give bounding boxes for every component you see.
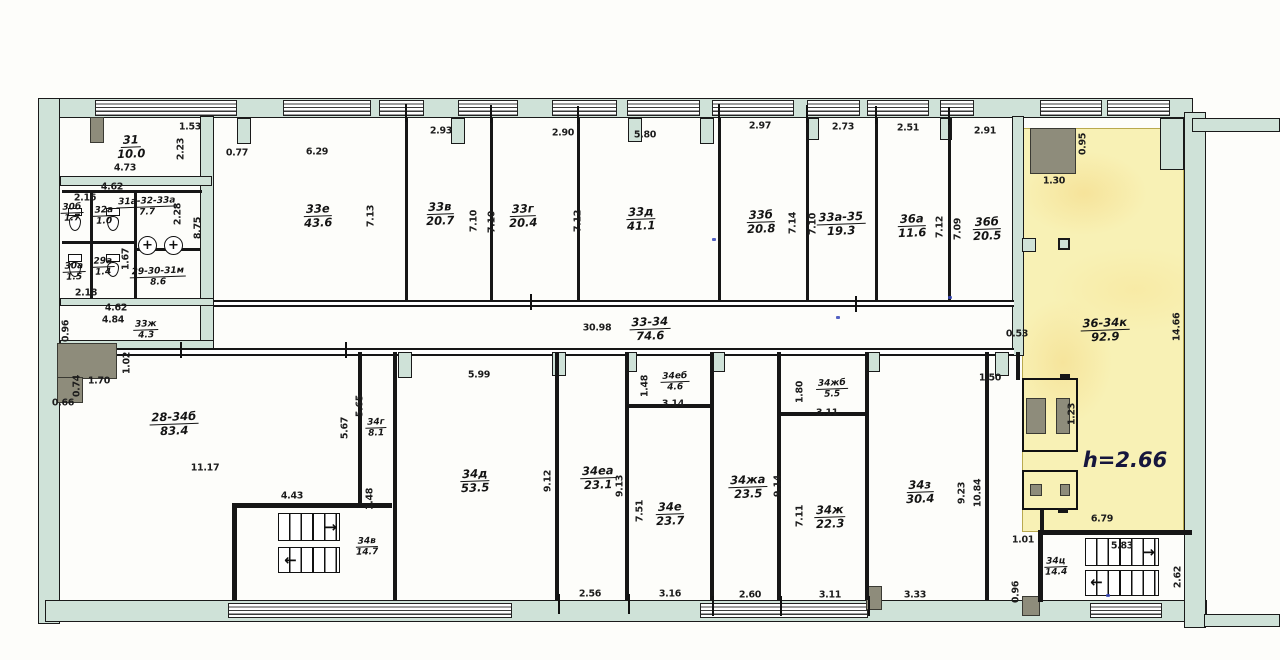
room-label-33-34: 33-3474.6 [629, 315, 671, 343]
room-label-34г: 34г8.1 [365, 417, 387, 439]
dimension-label: 0.66 [52, 398, 74, 409]
dimension-label: 7.14 [788, 212, 799, 234]
dimension-label: 4.73 [114, 163, 136, 174]
dimension-label: 1.53 [179, 122, 201, 133]
dimension-label: 9.23 [957, 482, 968, 504]
dimension-label: 7.10 [469, 210, 480, 232]
room-label-34еа: 34еа23.1 [580, 464, 616, 492]
room-label-33ж: 33ж4.3 [133, 319, 159, 341]
dimension-label: 2.73 [832, 122, 854, 133]
dimension-label: 2.56 [579, 589, 601, 600]
dimension-label: 14.66 [1172, 313, 1183, 342]
room-label-34жб: 34жб5.5 [816, 378, 848, 400]
room-label-29а: 29а1.4 [91, 256, 114, 278]
dimension-label: 3.11 [819, 590, 841, 601]
floor-plan: + + → ← → ← 3110.030б1.732а1.031а-32-33а… [0, 0, 1280, 660]
dimension-label: 1.02 [122, 352, 133, 374]
dimension-label: 4.62 [105, 303, 127, 314]
dimension-label: 9.13 [615, 475, 626, 497]
dimension-label: 3.33 [904, 590, 926, 601]
labels-layer: 3110.030б1.732а1.031а-32-33а7.730а1.529а… [0, 0, 1280, 660]
dimension-label: 6.29 [306, 147, 328, 158]
dimension-label: 0.96 [61, 320, 72, 342]
dimension-label: 9.12 [543, 470, 554, 492]
room-label-29-30-31м: 29-30-31м8.6 [129, 265, 186, 288]
dimension-label: 3.16 [659, 589, 681, 600]
dimension-label: 2.97 [749, 121, 771, 132]
dimension-label: 5.65 [355, 395, 366, 417]
dimension-label: 5.80 [634, 130, 656, 141]
room-label-30а: 30а1.5 [62, 261, 85, 283]
dimension-label: 2.91 [974, 126, 996, 137]
dimension-label: 0.95 [1078, 133, 1089, 155]
room-label-36а: 36а11.6 [897, 212, 926, 240]
room-label-33г: 33г20.4 [508, 202, 537, 230]
dimension-label: 0.96 [1011, 581, 1022, 603]
dimension-label: 10.84 [973, 479, 984, 508]
dimension-label: 8.75 [193, 217, 204, 239]
dimension-label: 7.13 [366, 205, 377, 227]
dimension-label: 4.84 [102, 315, 124, 326]
dimension-label: 11.17 [191, 463, 220, 474]
dimension-label: 9.14 [773, 475, 784, 497]
room-label-31: 3110.0 [116, 133, 145, 161]
room-label-33д: 33д41.1 [626, 205, 656, 233]
dimension-label: 7.09 [953, 218, 964, 240]
dimension-label: 5.67 [340, 417, 351, 439]
room-label-36б: 36б20.5 [972, 215, 1001, 243]
dimension-label: 5.83 [1111, 541, 1133, 552]
dimension-label: 2.23 [176, 138, 187, 160]
room-label-34ц: 34ц14.4 [1044, 556, 1068, 578]
dimension-label: 1.48 [365, 488, 376, 510]
room-label-32а: 32а1.0 [92, 205, 115, 227]
room-label-33а-35: 33а-3519.3 [816, 210, 865, 238]
dimension-label: 7.51 [635, 500, 646, 522]
dimension-label: 7.12 [935, 216, 946, 238]
dimension-label: 1.30 [1043, 176, 1065, 187]
dimension-label: 1.48 [640, 375, 651, 397]
dimension-label: 7.12 [573, 210, 584, 232]
dimension-label: 0.53 [1006, 329, 1028, 340]
dimension-label: 2.18 [75, 288, 97, 299]
dimension-label: 1.50 [979, 373, 1001, 384]
dimension-label: 0.77 [226, 148, 248, 159]
dimension-label: 4.62 [101, 182, 123, 193]
dimension-label: 4.43 [281, 491, 303, 502]
room-label-31а-32-33а: 31а-32-33а7.7 [116, 195, 178, 218]
room-label-33е: 33е43.6 [303, 202, 332, 230]
room-label-34еб: 34еб4.6 [660, 371, 690, 393]
room-label-34в: 34в14.7 [356, 536, 379, 558]
room-label-34ж: 34ж22.3 [814, 503, 846, 531]
dimension-label: 1.01 [1012, 535, 1034, 546]
dimension-label: 1.23 [1067, 403, 1078, 425]
dimension-label: 0.74 [72, 375, 83, 397]
dimension-label: 1.70 [88, 376, 110, 387]
dimension-label: 30.98 [583, 323, 612, 334]
room-label-34е: 34е23.7 [655, 500, 684, 528]
room-label-28-34б: 28-34б83.4 [149, 410, 199, 438]
room-label-34д: 34д53.5 [460, 467, 490, 495]
dimension-label: 2.51 [897, 123, 919, 134]
dimension-label: 3.11 [816, 408, 838, 419]
ceiling-height-note: h=2.66 [1083, 448, 1167, 472]
dimension-label: 5.99 [468, 370, 490, 381]
dimension-label: 2.93 [430, 126, 452, 137]
dimension-label: 1.80 [795, 381, 806, 403]
dimension-label: 7.11 [795, 505, 806, 527]
dimension-label: 6.79 [1091, 514, 1113, 525]
dimension-label: 3.14 [662, 399, 684, 410]
room-label-34жа: 34жа23.5 [728, 473, 768, 501]
dimension-label: 2.90 [552, 128, 574, 139]
room-label-33в: 33в20.7 [425, 200, 454, 228]
dimension-label: 2.60 [739, 590, 761, 601]
dimension-label: 2.62 [1173, 566, 1184, 588]
room-label-30б: 30б1.7 [60, 202, 84, 224]
room-label-34з: 34з30.4 [905, 478, 934, 506]
dimension-label: 7.10 [487, 211, 498, 233]
room-label-33б: 33б20.8 [746, 208, 775, 236]
room-label-36-34к: 36-34к92.9 [1080, 316, 1129, 344]
